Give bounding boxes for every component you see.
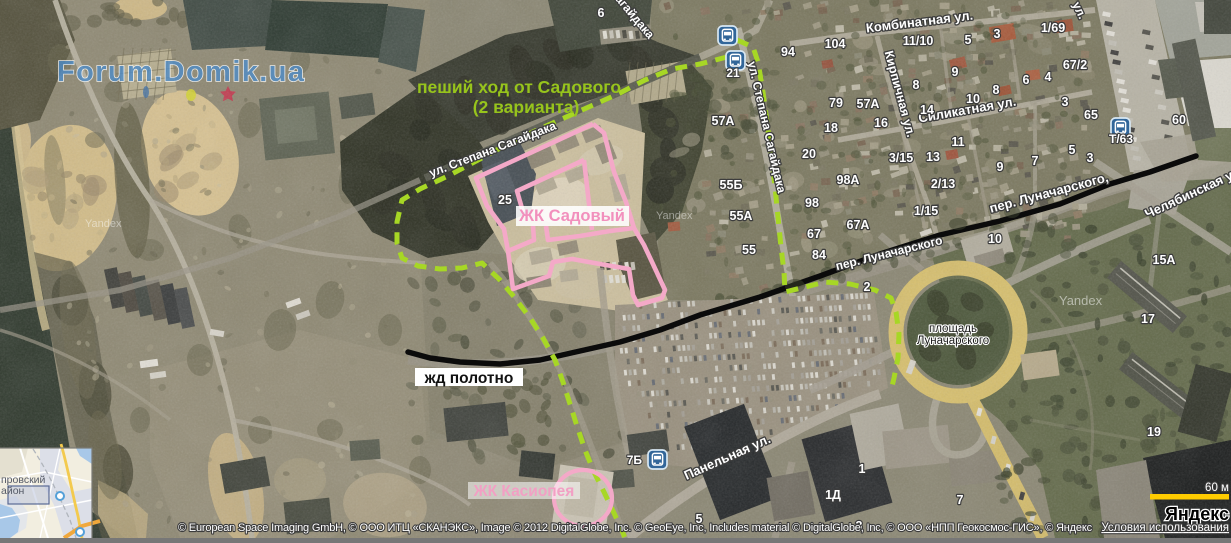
svg-text:55А: 55А [730,209,753,223]
svg-text:60: 60 [1172,113,1186,127]
svg-text:Yandex: Yandex [1059,293,1103,308]
svg-text:10: 10 [988,232,1002,246]
svg-text:Yandex: Yandex [656,210,693,222]
svg-text:14: 14 [920,103,934,117]
svg-text:11: 11 [951,135,964,149]
svg-text:айон: айон [1,485,25,497]
svg-text:Forum.Domik.ua: Forum.Domik.ua [57,56,305,88]
svg-text:13: 13 [926,150,940,164]
svg-text:84: 84 [812,248,826,262]
svg-text:20: 20 [802,147,816,161]
svg-text:(2 варианта): (2 варианта) [473,97,580,117]
svg-text:6: 6 [598,6,605,20]
svg-text:104: 104 [825,37,846,51]
svg-text:65: 65 [1084,108,1098,122]
svg-text:7: 7 [957,493,964,507]
svg-text:3/15: 3/15 [889,151,913,165]
svg-text:25: 25 [498,193,512,207]
svg-text:18: 18 [824,121,838,135]
svg-text:60 м: 60 м [1205,482,1229,494]
svg-text:11/10: 11/10 [903,34,934,48]
svg-text:Условия использования: Условия использования [1101,522,1229,534]
svg-text:8: 8 [913,78,920,92]
svg-text:ЖК Садовый: ЖК Садовый [518,207,625,225]
svg-text:5: 5 [965,33,972,47]
svg-text:67А: 67А [847,218,870,232]
svg-text:1: 1 [859,462,866,476]
svg-text:79: 79 [829,96,843,110]
svg-text:9: 9 [952,65,959,79]
svg-text:жд полотно: жд полотно [424,370,514,387]
svg-text:3: 3 [1087,151,1094,165]
svg-text:© European Space Imaging GmbH,: © European Space Imaging GmbH, © ООО ИТЦ… [178,522,1093,534]
svg-text:Yandex: Yandex [85,218,122,230]
svg-text:6: 6 [1023,73,1030,87]
svg-text:55Б: 55Б [720,178,743,192]
svg-text:8: 8 [993,83,1000,97]
svg-text:7: 7 [1032,154,1039,168]
svg-text:Т/63: Т/63 [1109,132,1133,146]
svg-text:10: 10 [966,92,980,106]
svg-text:1/15: 1/15 [914,204,938,218]
svg-text:Яндекс: Яндекс [1165,504,1229,524]
svg-text:67: 67 [807,227,821,241]
svg-text:площадь: площадь [929,323,977,335]
svg-text:57А: 57А [857,97,880,111]
svg-text:1/69: 1/69 [1041,21,1065,35]
svg-text:3: 3 [1062,95,1069,109]
svg-text:ЖК Касиопея: ЖК Касиопея [473,483,575,500]
svg-text:1Д: 1Д [825,488,841,502]
svg-text:2: 2 [864,280,871,294]
svg-text:Луначарского: Луначарского [917,335,989,347]
svg-text:17: 17 [1141,312,1155,326]
svg-text:98А: 98А [837,173,860,187]
svg-text:55: 55 [742,243,756,257]
svg-text:7Б: 7Б [627,453,643,467]
svg-text:9: 9 [997,160,1004,174]
svg-text:19: 19 [1147,425,1161,439]
svg-text:2/13: 2/13 [931,177,955,191]
svg-text:98: 98 [805,196,819,210]
svg-text:3: 3 [994,27,1001,41]
svg-text:94: 94 [781,45,795,59]
svg-text:67/2: 67/2 [1063,58,1087,72]
svg-text:16: 16 [874,116,888,130]
svg-text:21: 21 [726,66,740,80]
svg-text:4: 4 [1045,70,1052,84]
svg-text:5: 5 [1069,143,1076,157]
svg-text:57А: 57А [712,114,735,128]
svg-text:пеший ход от Садового: пеший ход от Садового [417,77,621,97]
svg-text:15А: 15А [1153,253,1176,267]
